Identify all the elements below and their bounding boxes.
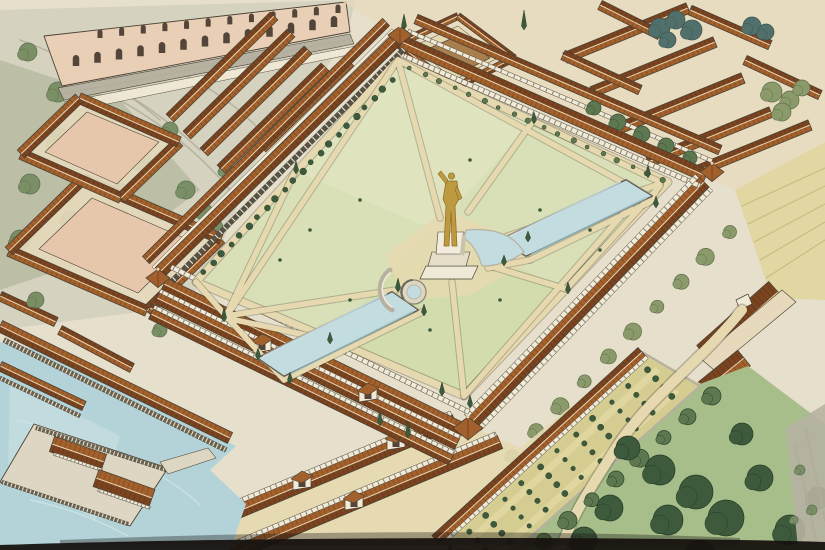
orchard-row-bush [555, 448, 560, 453]
arch-opening [331, 16, 338, 27]
court-trees-olive-lobe [793, 85, 803, 95]
arch-opening [98, 30, 103, 39]
orchard-row-bush [606, 433, 612, 439]
nw-hedge-bush [300, 168, 307, 175]
rocky-shrub-lobe [789, 519, 794, 524]
arch-opening [314, 7, 319, 16]
park-tree-lobe [745, 474, 761, 490]
cliff-shrub-lobe [175, 187, 186, 198]
orchard-row-bush [653, 376, 659, 382]
wall-side-tree-lobe [623, 329, 634, 340]
nw-hedge-bush [254, 215, 259, 220]
arch-opening [227, 16, 232, 24]
nw-hedge-bush [211, 260, 217, 266]
court-trees-blue-lobe [665, 17, 676, 28]
topiary-bush [598, 248, 602, 252]
nw-hedge-bush [229, 242, 234, 247]
orchard-row-bush [634, 392, 639, 397]
ne-hedge-bush [482, 98, 488, 104]
arch-opening [159, 42, 166, 53]
ne-hedge-bush [571, 138, 577, 144]
arch-opening [206, 18, 211, 26]
nw-hedge-bush [271, 195, 278, 202]
pedestal-top [436, 232, 464, 254]
nw-hedge-bush [283, 187, 288, 192]
wall-side-tree-lobe [722, 230, 730, 238]
orchard-row-bush [563, 457, 568, 462]
orchard-row-bush [582, 441, 587, 446]
nw-hedge-bush [343, 123, 349, 129]
nw-hedge-bush [218, 250, 225, 257]
park-tree-lobe [595, 504, 611, 520]
corner-pavilion-finial [467, 416, 470, 419]
nw-hedge-bush [362, 105, 367, 110]
arch-opening [249, 14, 254, 23]
topiary-bush [308, 228, 312, 232]
park-edge-tree-lobe [656, 435, 665, 444]
ne-hedge-bush [423, 72, 428, 77]
wall-side-tree-lobe [696, 254, 707, 265]
arch-opening [309, 19, 316, 30]
rocky-shrub-lobe [806, 508, 812, 514]
park-tree-lobe [729, 430, 743, 444]
orchard-row-bush [491, 521, 497, 527]
hedge-band-tree-lobe [586, 106, 595, 115]
arch-opening [94, 52, 101, 63]
arch-opening [137, 45, 144, 56]
park-tree-lobe [642, 465, 661, 484]
orchard-row-bush [571, 466, 576, 471]
orchard-row-bush [626, 383, 631, 388]
orchard-row-bush [519, 480, 524, 485]
nw-hedge-bush [372, 95, 378, 101]
arch-opening [180, 39, 187, 50]
wall-side-tree-lobe [577, 379, 585, 387]
orchard-row-bush [644, 367, 650, 373]
nw-hedge-bush [236, 232, 242, 238]
ne-hedge-bush [660, 177, 666, 183]
orchard-row-bush [574, 432, 579, 437]
orchard-row-bush [546, 473, 552, 479]
wall-side-tree-lobe [650, 305, 658, 313]
wall-side-tree-lobe [550, 404, 561, 415]
pedestal-base [420, 266, 478, 279]
corner-pavilion-finial [157, 268, 160, 271]
ne-hedge-bush [466, 92, 471, 97]
orchard-row-bush [519, 515, 524, 520]
nw-hedge-bush [201, 269, 206, 274]
court-trees-blue-lobe [741, 23, 752, 34]
orchard-row-bush [589, 415, 595, 421]
fountain-water [407, 285, 421, 299]
orchard-row-bush [503, 497, 508, 502]
nw-hedge-bush [264, 205, 270, 211]
orchard-row-bush [554, 482, 560, 488]
orchard-row-bush [483, 512, 489, 518]
park-tree-lobe [614, 444, 629, 459]
park-edge-tree-lobe [557, 518, 568, 529]
wall-side-tree-lobe [600, 354, 609, 363]
reconstruction-artwork [0, 0, 825, 550]
yard-shrub-lobe [152, 328, 161, 337]
orchard-row-bush [590, 450, 595, 455]
orchard-row-bush [511, 506, 516, 511]
park-edge-tree-lobe [701, 393, 712, 404]
orchard-row-bush [527, 524, 532, 529]
ne-hedge-bush [542, 125, 546, 129]
yard-shrub-lobe [27, 297, 37, 307]
arch-opening [223, 32, 230, 43]
court-trees-olive-lobe [771, 109, 782, 120]
topiary-bush [538, 208, 542, 212]
nw-hedge-bush [246, 223, 253, 230]
colossus-statue-head [448, 173, 454, 179]
nw-hedge-bush [354, 113, 361, 120]
arch-opening [336, 5, 341, 14]
cliff-shrub-lobe [46, 89, 58, 101]
park-tree-lobe [705, 512, 727, 534]
ne-hedge-bush [631, 165, 635, 169]
ne-hedge-bush [525, 118, 531, 124]
cliff-shrub-lobe [18, 181, 30, 193]
nw-hedge-bush [379, 86, 386, 93]
nw-hedge-bush [308, 160, 313, 165]
cliff-shrub-lobe [17, 49, 28, 60]
ne-hedge-bush [496, 106, 500, 110]
rocky-shrub-lobe [794, 468, 800, 474]
orchard-row-bush [579, 475, 584, 480]
park-edge-tree-lobe [584, 498, 593, 507]
corner-pavilion-finial [399, 25, 402, 28]
court-trees-blue-lobe [659, 37, 669, 47]
orchard-row-bush [538, 464, 544, 470]
orchard-row-bush [562, 490, 568, 496]
arch-opening [162, 23, 167, 32]
arch-opening [119, 27, 124, 36]
park-edge-tree-lobe [679, 414, 689, 424]
topiary-bush [588, 228, 592, 232]
arch-opening [292, 9, 297, 17]
nw-hedge-bush [336, 132, 341, 137]
topiary-bush [428, 328, 432, 332]
ne-hedge-bush [407, 66, 411, 70]
court-trees-olive-lobe [760, 89, 772, 101]
ne-hedge-bush [436, 78, 442, 84]
topiary-bush [278, 258, 282, 262]
orchard-row-bush [598, 424, 604, 430]
wall-side-tree-lobe [673, 279, 682, 288]
arch-opening [73, 55, 80, 66]
orchard-row-bush [527, 489, 532, 494]
topiary-bush [358, 198, 362, 202]
court-trees-blue-lobe [757, 29, 767, 39]
nw-hedge-bush [318, 150, 324, 156]
nw-hedge-bush [290, 178, 296, 184]
court-trees-blue-lobe [680, 27, 692, 39]
illustration-canvas [0, 0, 825, 550]
orchard-row-bush [543, 507, 548, 512]
ne-hedge-bush [453, 86, 457, 90]
orchard-row-bush [610, 400, 615, 405]
park-edge-tree-lobe [607, 476, 617, 486]
orchard-row-bush [618, 409, 623, 414]
ne-hedge-bush [614, 157, 620, 163]
arch-opening [141, 25, 146, 33]
nw-hedge-bush [325, 141, 332, 148]
arch-opening [184, 20, 189, 29]
ne-hedge-bush [512, 112, 517, 117]
arch-opening [116, 49, 123, 60]
orchard-row-bush [535, 498, 540, 503]
ne-hedge-bush [555, 131, 560, 136]
court-trees-blue-lobe [648, 25, 660, 37]
topiary-bush [498, 298, 502, 302]
nw-hedge-bush [390, 77, 395, 82]
park-tree-lobe [676, 487, 697, 508]
ne-hedge-bush [601, 151, 606, 156]
topiary-bush [348, 298, 352, 302]
ne-hedge-bush [585, 145, 589, 149]
topiary-bush [468, 158, 472, 162]
corner-pavilion-finial [711, 162, 714, 165]
park-tree-lobe [650, 515, 669, 534]
arch-opening [202, 36, 209, 47]
